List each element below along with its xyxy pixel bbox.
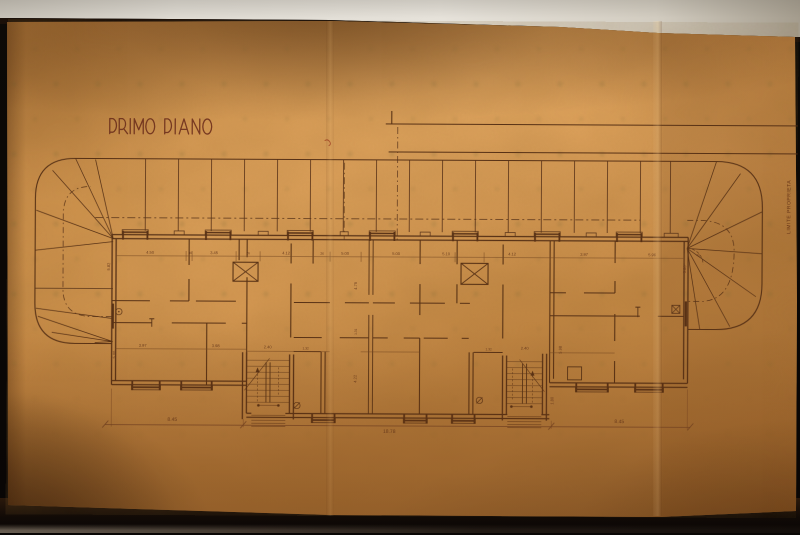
svg-text:4.22: 4.22 bbox=[352, 374, 357, 383]
svg-text:30: 30 bbox=[188, 251, 192, 255]
svg-text:18.78: 18.78 bbox=[383, 429, 396, 435]
svg-text:4.75: 4.75 bbox=[353, 281, 358, 290]
svg-text:2.40: 2.40 bbox=[264, 344, 273, 349]
svg-text:4.50: 4.50 bbox=[146, 250, 155, 255]
svg-text:1.31: 1.31 bbox=[354, 328, 358, 334]
svg-text:1.32: 1.32 bbox=[486, 347, 492, 351]
svg-text:40: 40 bbox=[696, 253, 700, 257]
svg-text:5.82: 5.82 bbox=[106, 262, 111, 271]
svg-text:1.80: 1.80 bbox=[549, 396, 554, 405]
svg-text:8.45: 8.45 bbox=[167, 417, 177, 423]
svg-text:5.98: 5.98 bbox=[558, 345, 563, 354]
svg-text:3.45: 3.45 bbox=[210, 250, 219, 255]
svg-text:LIMITE PROPRIETA: LIMITE PROPRIETA bbox=[786, 180, 792, 234]
svg-text:2.40: 2.40 bbox=[521, 346, 530, 351]
svg-text:26: 26 bbox=[246, 251, 250, 255]
svg-text:5.10: 5.10 bbox=[442, 251, 451, 256]
svg-text:5.00: 5.00 bbox=[392, 251, 401, 256]
svg-text:8.45: 8.45 bbox=[614, 419, 624, 425]
svg-text:3.98: 3.98 bbox=[212, 343, 221, 348]
svg-text:26: 26 bbox=[320, 252, 324, 256]
svg-text:1.32: 1.32 bbox=[303, 347, 309, 351]
svg-text:4.12: 4.12 bbox=[508, 252, 517, 257]
svg-text:5.00: 5.00 bbox=[341, 251, 350, 256]
svg-text:4.12: 4.12 bbox=[282, 250, 291, 255]
svg-text:3.97: 3.97 bbox=[139, 343, 148, 348]
svg-text:3.97: 3.97 bbox=[580, 252, 589, 257]
svg-text:5.80: 5.80 bbox=[682, 265, 687, 274]
svg-text:5.00: 5.00 bbox=[112, 350, 117, 359]
